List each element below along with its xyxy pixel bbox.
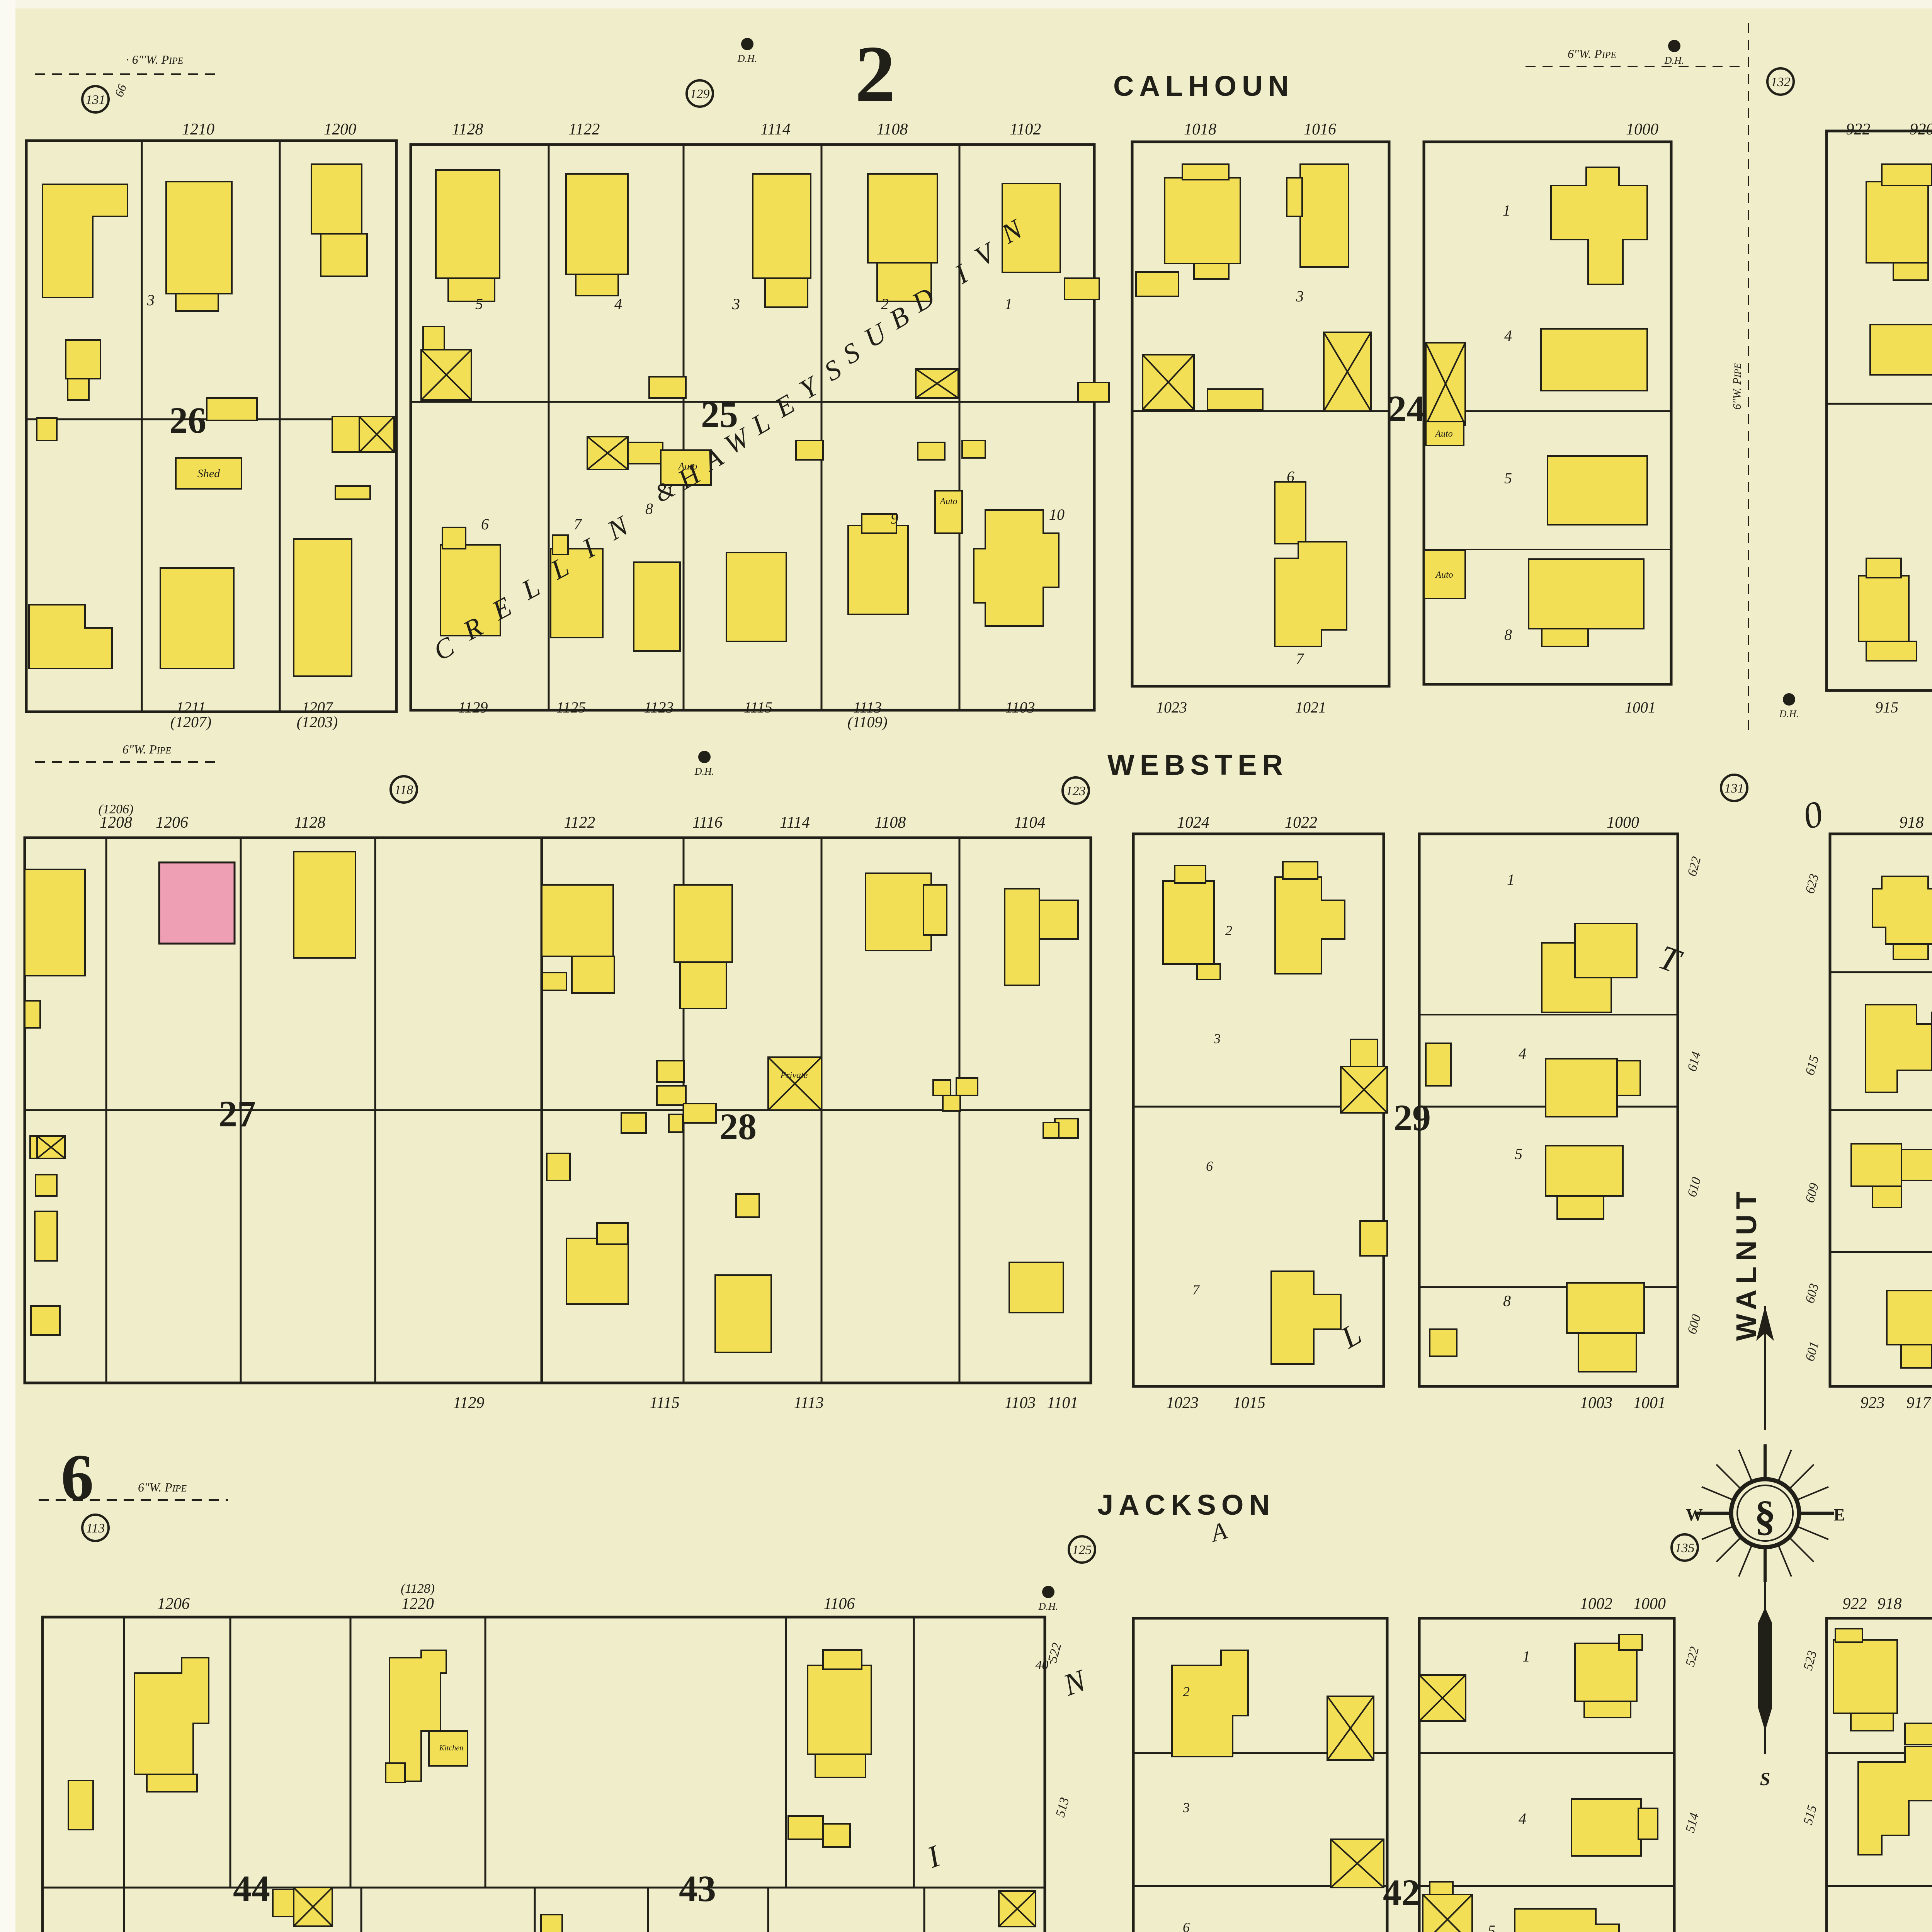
svg-text:Shed: Shed — [197, 467, 220, 480]
svg-text:8: 8 — [1504, 626, 1512, 643]
svg-text:6: 6 — [481, 515, 489, 533]
svg-text:4: 4 — [1519, 1045, 1526, 1062]
svg-text:5: 5 — [475, 295, 483, 313]
svg-text:1129: 1129 — [458, 699, 488, 716]
svg-text:Auto: Auto — [1434, 429, 1452, 439]
svg-text:3: 3 — [1182, 1800, 1190, 1815]
svg-text:WEBSTER: WEBSTER — [1107, 749, 1288, 781]
svg-text:1016: 1016 — [1304, 121, 1336, 138]
svg-text:5: 5 — [1488, 1922, 1495, 1932]
svg-text:WALNUT: WALNUT — [1730, 1186, 1762, 1341]
svg-text:1122: 1122 — [564, 814, 595, 832]
svg-text:918: 918 — [1900, 814, 1924, 832]
svg-text:4: 4 — [1519, 1810, 1526, 1827]
svg-text:1115: 1115 — [650, 1394, 680, 1412]
svg-text:1114: 1114 — [780, 814, 810, 832]
svg-text:6: 6 — [1206, 1158, 1213, 1174]
svg-text:1001: 1001 — [1625, 699, 1656, 716]
svg-text:40': 40' — [1035, 1658, 1051, 1672]
svg-text:3: 3 — [146, 291, 155, 309]
svg-text:915: 915 — [1875, 699, 1898, 716]
svg-text:26: 26 — [169, 400, 206, 441]
svg-text:7: 7 — [574, 515, 582, 533]
svg-text:43: 43 — [679, 1868, 716, 1909]
svg-text:2: 2 — [1225, 923, 1232, 938]
svg-text:Auto: Auto — [1435, 570, 1453, 580]
svg-text:Auto: Auto — [939, 497, 957, 507]
svg-text:1: 1 — [1507, 871, 1515, 888]
svg-text:1: 1 — [1503, 202, 1510, 219]
svg-text:7: 7 — [1296, 650, 1304, 667]
svg-text:8: 8 — [645, 500, 653, 517]
svg-text:1103: 1103 — [1005, 1394, 1036, 1412]
svg-text:1023: 1023 — [1156, 699, 1187, 716]
svg-text:1015: 1015 — [1233, 1394, 1265, 1412]
svg-text:922: 922 — [1843, 1595, 1867, 1613]
svg-text:1129: 1129 — [453, 1394, 485, 1412]
svg-text:D.H.: D.H. — [1779, 708, 1799, 719]
svg-text:2: 2 — [881, 295, 889, 313]
svg-text:922: 922 — [1846, 121, 1871, 138]
svg-text:JACKSON: JACKSON — [1097, 1489, 1275, 1521]
svg-text:135: 135 — [1675, 1541, 1695, 1555]
svg-text:27: 27 — [219, 1093, 256, 1134]
svg-text:1125: 1125 — [556, 699, 586, 716]
svg-text:1106: 1106 — [824, 1595, 855, 1613]
svg-text:28: 28 — [719, 1106, 757, 1147]
svg-text:8: 8 — [1503, 1292, 1511, 1310]
svg-text:1200: 1200 — [324, 121, 356, 138]
svg-text:113: 113 — [86, 1521, 105, 1536]
svg-text:1108: 1108 — [875, 814, 906, 832]
svg-text:1104: 1104 — [1014, 814, 1046, 832]
svg-text:D.H.: D.H. — [737, 53, 757, 64]
svg-text:10: 10 — [1049, 506, 1065, 523]
svg-text:1113: 1113 — [794, 1394, 824, 1412]
svg-text:24: 24 — [1388, 388, 1425, 429]
svg-text:1023: 1023 — [1166, 1394, 1199, 1412]
svg-text:131: 131 — [86, 93, 105, 107]
svg-text:1000: 1000 — [1633, 1595, 1666, 1613]
svg-text:1: 1 — [1522, 1648, 1530, 1665]
svg-text:1128: 1128 — [294, 814, 326, 832]
svg-text:D.H.: D.H. — [694, 766, 714, 777]
svg-text:1115: 1115 — [744, 699, 772, 716]
svg-text:(1206): (1206) — [99, 802, 134, 816]
svg-text:6: 6 — [1183, 1920, 1190, 1932]
svg-text:1220: 1220 — [401, 1595, 434, 1613]
svg-text:1022: 1022 — [1285, 814, 1317, 832]
svg-text:1001: 1001 — [1633, 1394, 1666, 1412]
svg-text:1000: 1000 — [1607, 814, 1639, 832]
svg-text:1003: 1003 — [1580, 1394, 1612, 1412]
svg-text:§: § — [1755, 1492, 1776, 1539]
svg-text:29: 29 — [1394, 1097, 1431, 1138]
svg-text:1128: 1128 — [452, 121, 483, 138]
svg-text:44: 44 — [233, 1868, 270, 1909]
svg-text:1000: 1000 — [1626, 121, 1658, 138]
svg-text:(1109): (1109) — [847, 713, 888, 731]
svg-text:D.H.: D.H. — [1664, 55, 1684, 66]
svg-text:7: 7 — [1192, 1282, 1200, 1298]
svg-text:6: 6 — [1287, 468, 1294, 485]
svg-text:131: 131 — [1725, 781, 1744, 796]
svg-text:920: 920 — [1910, 121, 1932, 138]
svg-text:9: 9 — [891, 510, 898, 527]
svg-text:CALHOUN: CALHOUN — [1113, 70, 1294, 102]
svg-text:132: 132 — [1771, 75, 1791, 89]
svg-text:1024: 1024 — [1177, 814, 1209, 832]
svg-text:Kitchen: Kitchen — [439, 1744, 463, 1752]
svg-text:4: 4 — [1504, 327, 1512, 344]
svg-text:1102: 1102 — [1010, 121, 1041, 138]
svg-text:1206: 1206 — [156, 814, 188, 832]
svg-text:3: 3 — [1296, 287, 1304, 305]
svg-text:5: 5 — [1515, 1145, 1522, 1163]
svg-text:(1128): (1128) — [401, 1582, 435, 1596]
svg-text:1002: 1002 — [1580, 1595, 1612, 1613]
svg-text:1122: 1122 — [569, 121, 600, 138]
svg-text:123: 123 — [1066, 784, 1086, 798]
svg-text:2: 2 — [1183, 1684, 1190, 1699]
svg-text:1021: 1021 — [1295, 699, 1326, 716]
svg-text:D.H.: D.H. — [1038, 1601, 1058, 1612]
svg-text:1116: 1116 — [692, 814, 723, 832]
svg-text:1114: 1114 — [760, 121, 791, 138]
svg-text:125: 125 — [1072, 1543, 1092, 1557]
svg-text:917: 917 — [1906, 1394, 1932, 1412]
svg-text:1101: 1101 — [1047, 1394, 1078, 1412]
svg-text:3: 3 — [1213, 1031, 1221, 1046]
svg-text:918: 918 — [1878, 1595, 1902, 1613]
svg-text:(1203): (1203) — [297, 713, 338, 731]
svg-text:923: 923 — [1861, 1394, 1885, 1412]
svg-text:2: 2 — [855, 29, 896, 119]
svg-text:6: 6 — [61, 1441, 94, 1514]
svg-text:5: 5 — [1504, 469, 1512, 487]
svg-text:1103: 1103 — [1005, 699, 1035, 716]
svg-text:4: 4 — [614, 295, 622, 313]
svg-text:W: W — [1686, 1505, 1703, 1524]
svg-text:1206: 1206 — [157, 1595, 190, 1613]
svg-text:Private: Private — [780, 1070, 808, 1080]
svg-text:E: E — [1833, 1505, 1845, 1524]
svg-text:118: 118 — [395, 783, 413, 797]
svg-text:42: 42 — [1383, 1872, 1420, 1913]
svg-text:1: 1 — [1005, 295, 1012, 313]
svg-text:1018: 1018 — [1184, 121, 1216, 138]
svg-text:1108: 1108 — [877, 121, 908, 138]
svg-text:3: 3 — [732, 295, 740, 313]
svg-text:1123: 1123 — [644, 699, 673, 716]
svg-text:S: S — [1760, 1769, 1770, 1789]
svg-text:1210: 1210 — [182, 121, 214, 138]
svg-text:129: 129 — [690, 87, 710, 101]
svg-text:(1207): (1207) — [170, 713, 212, 731]
